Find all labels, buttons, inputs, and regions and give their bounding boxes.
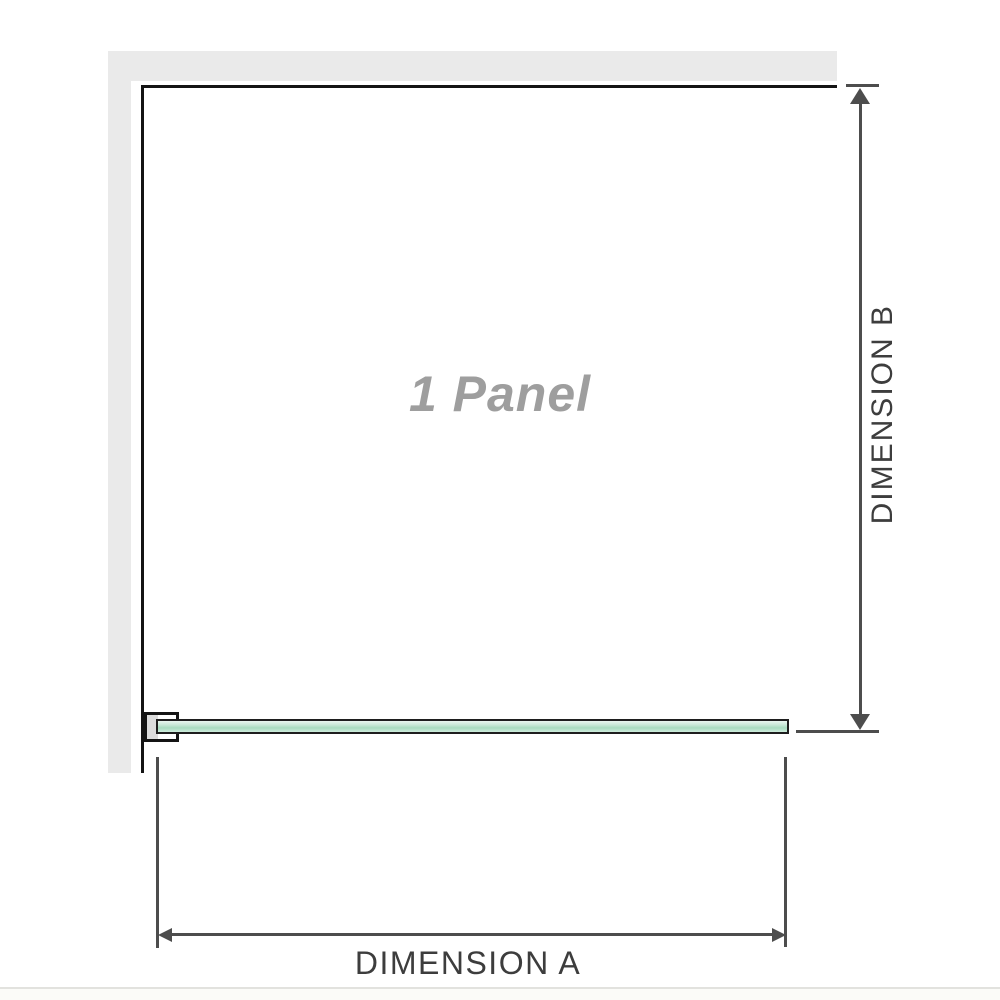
- wall-side-band: [108, 51, 131, 773]
- arrow-left-icon: [158, 928, 172, 942]
- dimension-b-tick-bottom: [796, 730, 879, 733]
- panel-outline-top: [141, 85, 837, 88]
- glass-panel-plan-view: [156, 719, 789, 734]
- arrow-down-icon: [850, 714, 870, 730]
- image-bottom-strip: [0, 989, 1000, 1000]
- arrow-right-icon: [772, 928, 786, 942]
- panel-outline-left: [141, 85, 144, 773]
- arrow-up-icon: [850, 88, 870, 104]
- dimension-b-label: DIMENSION B: [860, 264, 906, 564]
- dimension-a-label: DIMENSION A: [288, 945, 648, 982]
- dimension-a-extension-left: [156, 757, 159, 948]
- dimension-a-extension-right: [784, 757, 787, 947]
- dimension-b-tick-top: [846, 84, 879, 87]
- dimension-a-line: [166, 933, 778, 936]
- shower-panel-dimension-diagram: 1 Panel DIMENSION B DIMENSION A: [0, 0, 1000, 1000]
- panel-count-label: 1 Panel: [330, 366, 670, 422]
- dimension-b-label-text: DIMENSION B: [866, 304, 900, 524]
- wall-top-band: [108, 51, 837, 81]
